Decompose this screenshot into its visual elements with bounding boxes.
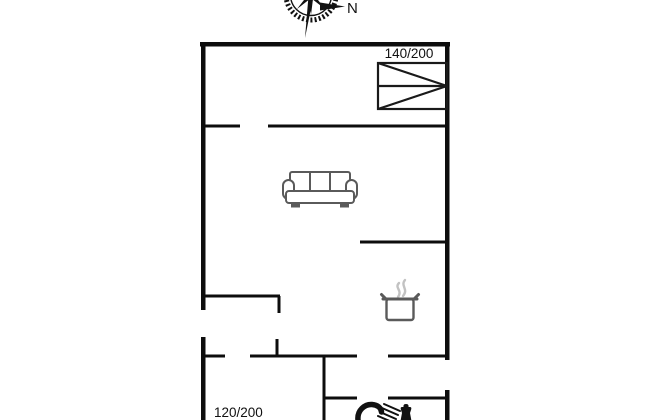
sofa-backrest [290, 172, 350, 193]
bed-size-label-top: 140/200 [385, 46, 434, 61]
steam-wisp [397, 283, 399, 297]
bed-diagonal [378, 63, 447, 86]
sofa-foot [292, 203, 299, 207]
steam [397, 280, 405, 297]
sofa-foot [341, 203, 348, 207]
compass-rose-icon: N [286, 0, 358, 38]
shower-handle [358, 404, 382, 420]
sofa-icon [283, 172, 357, 207]
pot-body [382, 295, 419, 321]
bed-diagonal [378, 86, 447, 109]
floorplan-drawing: N [0, 0, 650, 420]
north-label: N [347, 0, 358, 17]
toilet-silhouette [401, 404, 412, 420]
double-bed-symbol [378, 63, 447, 109]
interior-walls [203, 126, 446, 420]
shower-icon [358, 404, 400, 420]
pot [387, 299, 414, 320]
steam-wisp [403, 280, 405, 296]
bed-size-label-bottom: 120/200 [214, 405, 263, 420]
sofa-seat [286, 191, 354, 203]
floorplan-page: N [0, 0, 650, 420]
toilet-icon [401, 404, 412, 420]
cooking-pot-icon [382, 280, 419, 320]
